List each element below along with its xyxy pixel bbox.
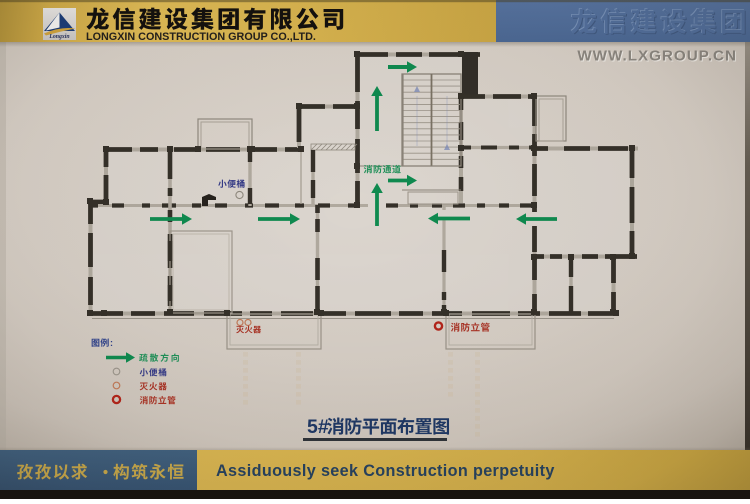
svg-text:5#: 5# (307, 416, 329, 438)
svg-text:Assiduously seek Construction: Assiduously seek Construction perpetuity (216, 462, 555, 480)
svg-text::: : (110, 338, 113, 348)
svg-text:WWW.LXGROUP.CN: WWW.LXGROUP.CN (577, 47, 737, 64)
svg-text:Longxin: Longxin (48, 34, 69, 40)
svg-text:LONGXIN CONSTRUCTION GROUP CO.: LONGXIN CONSTRUCTION GROUP CO.,LTD. (86, 31, 316, 43)
